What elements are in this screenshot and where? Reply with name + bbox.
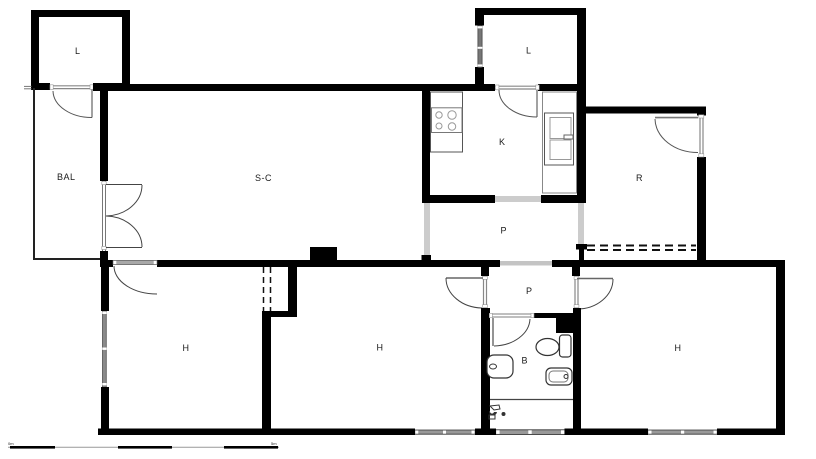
svg-text:5m: 5m (271, 441, 277, 446)
svg-text:L: L (75, 46, 80, 56)
svg-text:P: P (501, 226, 507, 236)
svg-text:K: K (499, 137, 505, 147)
svg-text:H: H (377, 343, 384, 353)
svg-text:0m: 0m (8, 441, 14, 446)
svg-text:S-C: S-C (255, 173, 272, 183)
svg-text:BAL: BAL (57, 172, 76, 182)
svg-text:R: R (636, 173, 643, 183)
svg-text:H: H (675, 343, 682, 353)
svg-text:B: B (522, 356, 528, 366)
svg-text:L: L (526, 46, 531, 56)
svg-text:H: H (183, 343, 190, 353)
svg-text:P: P (526, 286, 532, 296)
